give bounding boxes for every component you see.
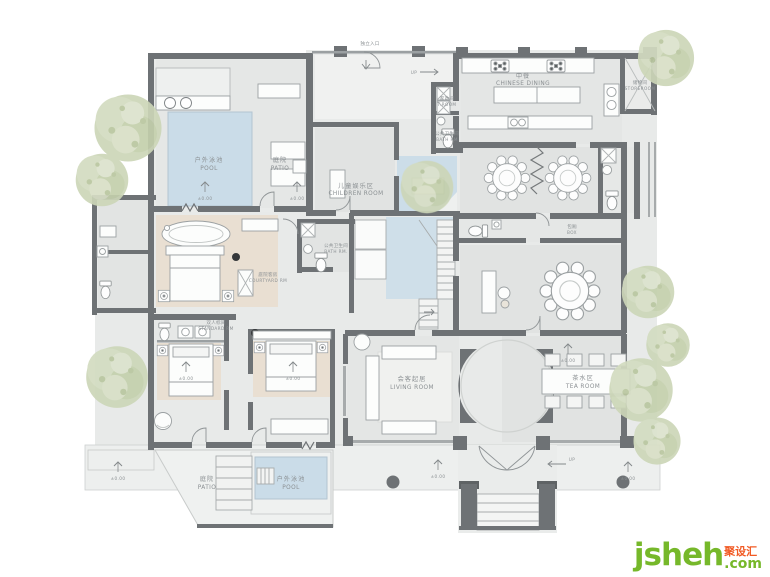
svg-text:POOL: POOL <box>200 166 218 172</box>
nightstand-icon <box>222 290 233 301</box>
toilet-icon <box>100 281 111 299</box>
svg-text:庭院: 庭院 <box>200 475 214 483</box>
watermark-logo: jsheh 聚设汇 .com <box>634 540 762 571</box>
watermark-brand: jsheh <box>634 540 723 571</box>
toilet-icon <box>469 225 488 237</box>
svg-text:家政间: 家政间 <box>440 95 455 102</box>
svg-text:公共卫生间: 公共卫生间 <box>324 242 348 249</box>
svg-text:BATH RM.: BATH RM. <box>324 249 348 254</box>
svg-text:±0.00: ±0.00 <box>561 358 576 363</box>
patio-table <box>258 84 300 98</box>
toilet-icon <box>606 191 618 210</box>
pool-ladder <box>257 468 274 484</box>
tree-icon <box>76 154 129 207</box>
svg-text:STANDARD RM: STANDARD RM <box>198 326 233 331</box>
cooktop-icon <box>491 60 509 72</box>
svg-text:户外泳池: 户外泳池 <box>195 156 224 164</box>
svg-text:BATH RM: BATH RM <box>436 137 458 142</box>
svg-text:会客起居: 会客起居 <box>398 375 427 383</box>
tree-icon <box>633 417 680 464</box>
desk <box>482 271 496 313</box>
svg-text:茶水区: 茶水区 <box>572 374 594 382</box>
nightstand-icon <box>213 345 224 356</box>
svg-text:BOX: BOX <box>567 230 577 235</box>
floor-plan-drawing: 独立入口 户外泳池 POOL 庭院 PATIO 儿童娱乐区 CHILDREN R… <box>0 0 770 577</box>
tree-icon <box>646 323 690 367</box>
svg-text:PATIO: PATIO <box>271 166 289 172</box>
lower-stair <box>419 299 438 329</box>
svg-text:POOL: POOL <box>282 485 300 491</box>
svg-text:中餐: 中餐 <box>516 72 530 80</box>
round-chair <box>354 334 370 350</box>
sofa <box>366 356 379 420</box>
nightstand-icon <box>317 342 328 353</box>
toilet-icon <box>159 323 170 341</box>
svg-text:庭院: 庭院 <box>273 156 287 164</box>
svg-text:庭院客房: 庭院客房 <box>258 271 277 278</box>
svg-text:双人标间: 双人标间 <box>206 319 225 326</box>
toilet-icon <box>315 253 327 272</box>
svg-text:T.ROOM: T.ROOM <box>437 102 457 107</box>
tree-icon <box>609 358 672 421</box>
svg-text:±0.00: ±0.00 <box>286 376 301 381</box>
nightstand-icon <box>254 342 265 353</box>
kitchen-counter <box>462 58 594 73</box>
svg-text:±0.00: ±0.00 <box>179 376 194 381</box>
sofa <box>382 421 436 434</box>
bench <box>271 419 328 434</box>
svg-text:户外泳池: 户外泳池 <box>277 475 306 483</box>
svg-text:±0.00: ±0.00 <box>198 196 213 201</box>
room-children <box>315 128 395 212</box>
svg-text:±0.00: ±0.00 <box>621 476 636 481</box>
svg-text:儿童娱乐区: 儿童娱乐区 <box>338 182 374 190</box>
svg-text:LIVING ROOM: LIVING ROOM <box>390 385 434 391</box>
tree-icon <box>94 94 161 161</box>
svg-text:±0.00: ±0.00 <box>111 476 126 481</box>
svg-text:CHINESE DINING: CHINESE DINING <box>496 81 550 87</box>
floor-plan-canvas: 独立入口 户外泳池 POOL 庭院 PATIO 儿童娱乐区 CHILDREN R… <box>0 0 770 577</box>
svg-text:公共卫生间: 公共卫生间 <box>435 130 459 137</box>
tree-icon <box>622 266 675 319</box>
bathtub <box>162 221 230 247</box>
svg-text:TEA ROOM: TEA ROOM <box>565 384 600 390</box>
svg-text:±0.00: ±0.00 <box>431 474 446 479</box>
cooktop-icon <box>547 60 565 72</box>
watermark-tld: .com <box>724 557 762 571</box>
patio-steps <box>216 456 252 510</box>
svg-text:储物间: 储物间 <box>633 79 648 86</box>
round-chair <box>155 413 172 430</box>
desk <box>100 226 116 237</box>
svg-text:UP: UP <box>411 70 417 75</box>
sofa <box>382 346 436 359</box>
nightstand-icon <box>157 345 168 356</box>
svg-text:包厢: 包厢 <box>567 223 577 230</box>
nightstand-icon <box>158 290 169 301</box>
svg-text:CHILDREN ROOM: CHILDREN ROOM <box>328 191 383 197</box>
tree-icon <box>401 161 454 214</box>
main-staircase <box>437 220 455 299</box>
svg-text:UP: UP <box>569 457 575 462</box>
tree-icon <box>638 30 694 86</box>
tree-icon <box>86 346 148 408</box>
svg-text:COURTYARD RM: COURTYARD RM <box>249 278 287 283</box>
svg-text:±0.00: ±0.00 <box>290 196 305 201</box>
svg-text:STOREROOM: STOREROOM <box>625 86 656 91</box>
bed <box>170 255 220 301</box>
svg-text:PATIO: PATIO <box>198 485 216 491</box>
label-entrance: 独立入口 <box>360 40 379 47</box>
